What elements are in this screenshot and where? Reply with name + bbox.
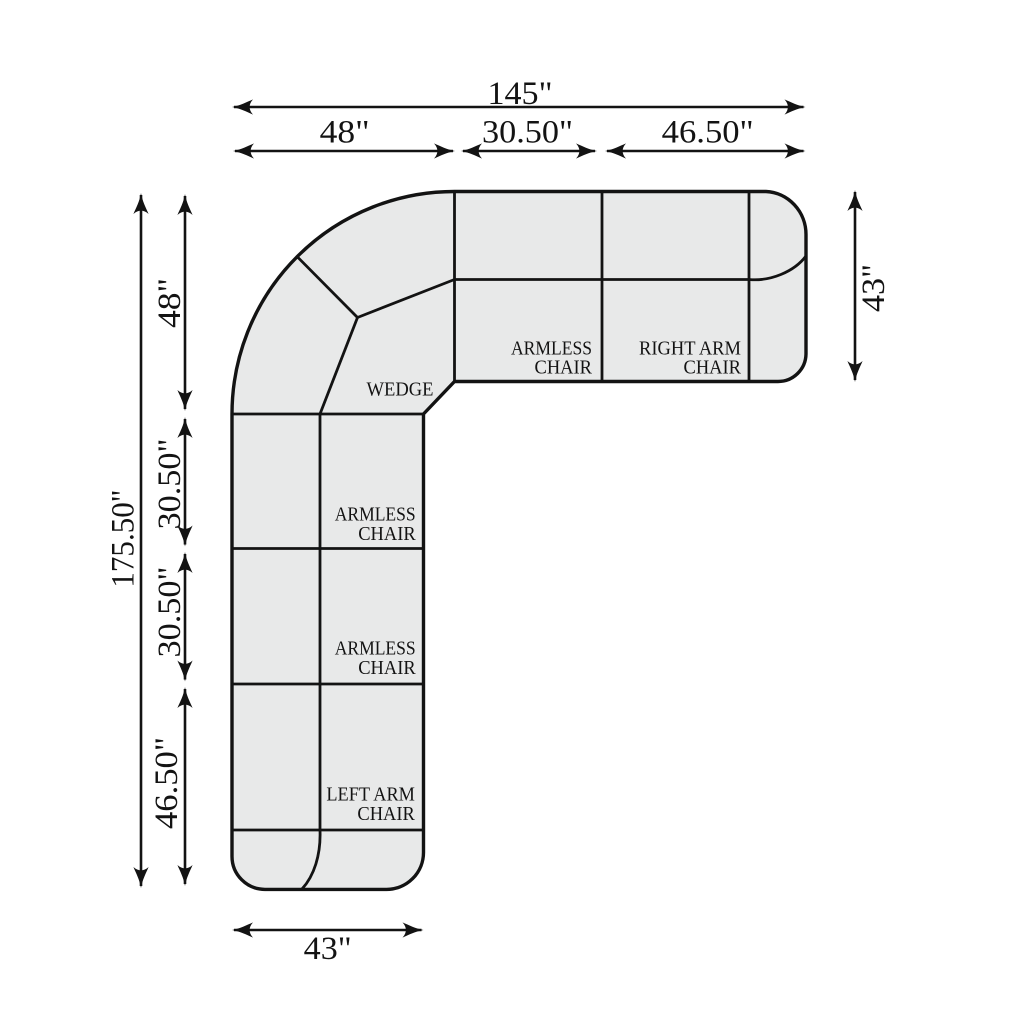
svg-text:46.50": 46.50" — [149, 737, 185, 829]
svg-text:145": 145" — [488, 76, 553, 112]
svg-text:48": 48" — [152, 278, 188, 328]
svg-text:CHAIR: CHAIR — [358, 523, 416, 545]
svg-text:48": 48" — [320, 115, 370, 151]
svg-text:43": 43" — [856, 264, 892, 312]
svg-text:30.50": 30.50" — [152, 567, 188, 658]
svg-text:43": 43" — [304, 931, 352, 967]
svg-text:CHAIR: CHAIR — [535, 357, 593, 379]
svg-text:LEFT ARM: LEFT ARM — [326, 783, 415, 805]
svg-text:CHAIR: CHAIR — [358, 657, 416, 679]
svg-text:46.50": 46.50" — [662, 115, 754, 151]
svg-text:CHAIR: CHAIR — [357, 803, 415, 825]
svg-text:30.50": 30.50" — [482, 115, 573, 151]
svg-text:30.50": 30.50" — [152, 439, 188, 530]
svg-text:CHAIR: CHAIR — [684, 357, 742, 379]
svg-text:WEDGE: WEDGE — [367, 379, 434, 401]
svg-text:175.50": 175.50" — [106, 490, 142, 588]
